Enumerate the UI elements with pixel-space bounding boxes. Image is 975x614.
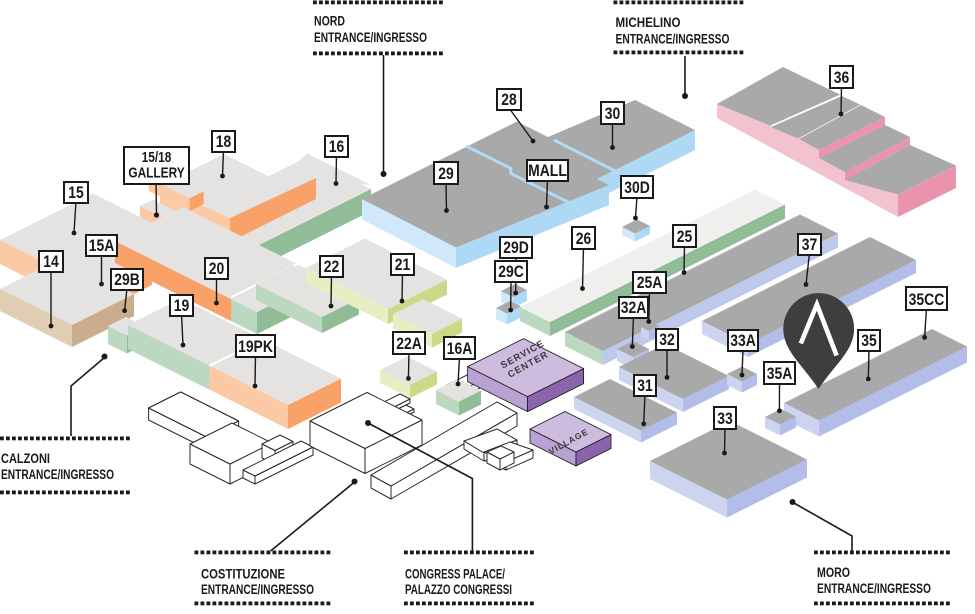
svg-text:32A: 32A [621,299,647,318]
svg-text:25: 25 [677,228,693,247]
svg-text:30: 30 [605,105,620,124]
svg-text:33A: 33A [730,332,756,351]
svg-text:35: 35 [861,332,877,351]
svg-text:30D: 30D [624,179,650,198]
svg-text:36: 36 [834,69,850,88]
svg-text:CALZONI: CALZONI [1,451,50,466]
svg-text:ENTRANCE/INGRESSO: ENTRANCE/INGRESSO [314,30,427,45]
svg-text:CONGRESS PALACE/: CONGRESS PALACE/ [405,567,505,582]
svg-text:ENTRANCE/INGRESSO: ENTRANCE/INGRESSO [1,467,114,482]
svg-text:29C: 29C [498,263,524,282]
svg-text:14: 14 [43,253,59,272]
svg-text:37: 37 [802,236,817,255]
svg-text:ENTRANCE/INGRESSO: ENTRANCE/INGRESSO [817,581,931,596]
svg-text:29D: 29D [503,239,529,258]
svg-text:MICHELINO: MICHELINO [616,15,681,30]
svg-text:29B: 29B [114,271,140,290]
svg-text:MALL: MALL [528,162,567,181]
svg-text:19: 19 [174,297,190,316]
svg-text:19PK: 19PK [238,338,274,357]
svg-text:15: 15 [68,184,84,203]
svg-text:15A: 15A [89,237,115,256]
svg-text:22: 22 [324,258,340,277]
svg-text:31: 31 [637,377,653,396]
svg-text:NORD: NORD [314,14,345,29]
svg-text:33: 33 [717,410,733,429]
svg-text:21: 21 [395,256,411,275]
svg-text:COSTITUZIONE: COSTITUZIONE [201,567,285,582]
svg-text:28: 28 [501,91,517,110]
svg-text:20: 20 [209,260,224,279]
svg-text:16A: 16A [447,340,473,359]
svg-text:35CC: 35CC [909,291,945,310]
svg-text:18: 18 [216,133,232,152]
svg-text:ENTRANCE/INGRESSO: ENTRANCE/INGRESSO [616,32,730,47]
svg-text:32: 32 [659,331,675,350]
svg-text:ENTRANCE/INGRESSO: ENTRANCE/INGRESSO [201,582,314,597]
svg-text:PALAZZO CONGRESSI: PALAZZO CONGRESSI [405,582,512,597]
svg-text:22A: 22A [396,335,422,354]
svg-text:26: 26 [576,230,592,249]
svg-text:25A: 25A [637,274,663,293]
svg-text:29: 29 [438,165,454,184]
svg-text:16: 16 [329,138,345,157]
svg-text:MORO: MORO [817,565,850,580]
svg-text:35A: 35A [767,365,793,384]
